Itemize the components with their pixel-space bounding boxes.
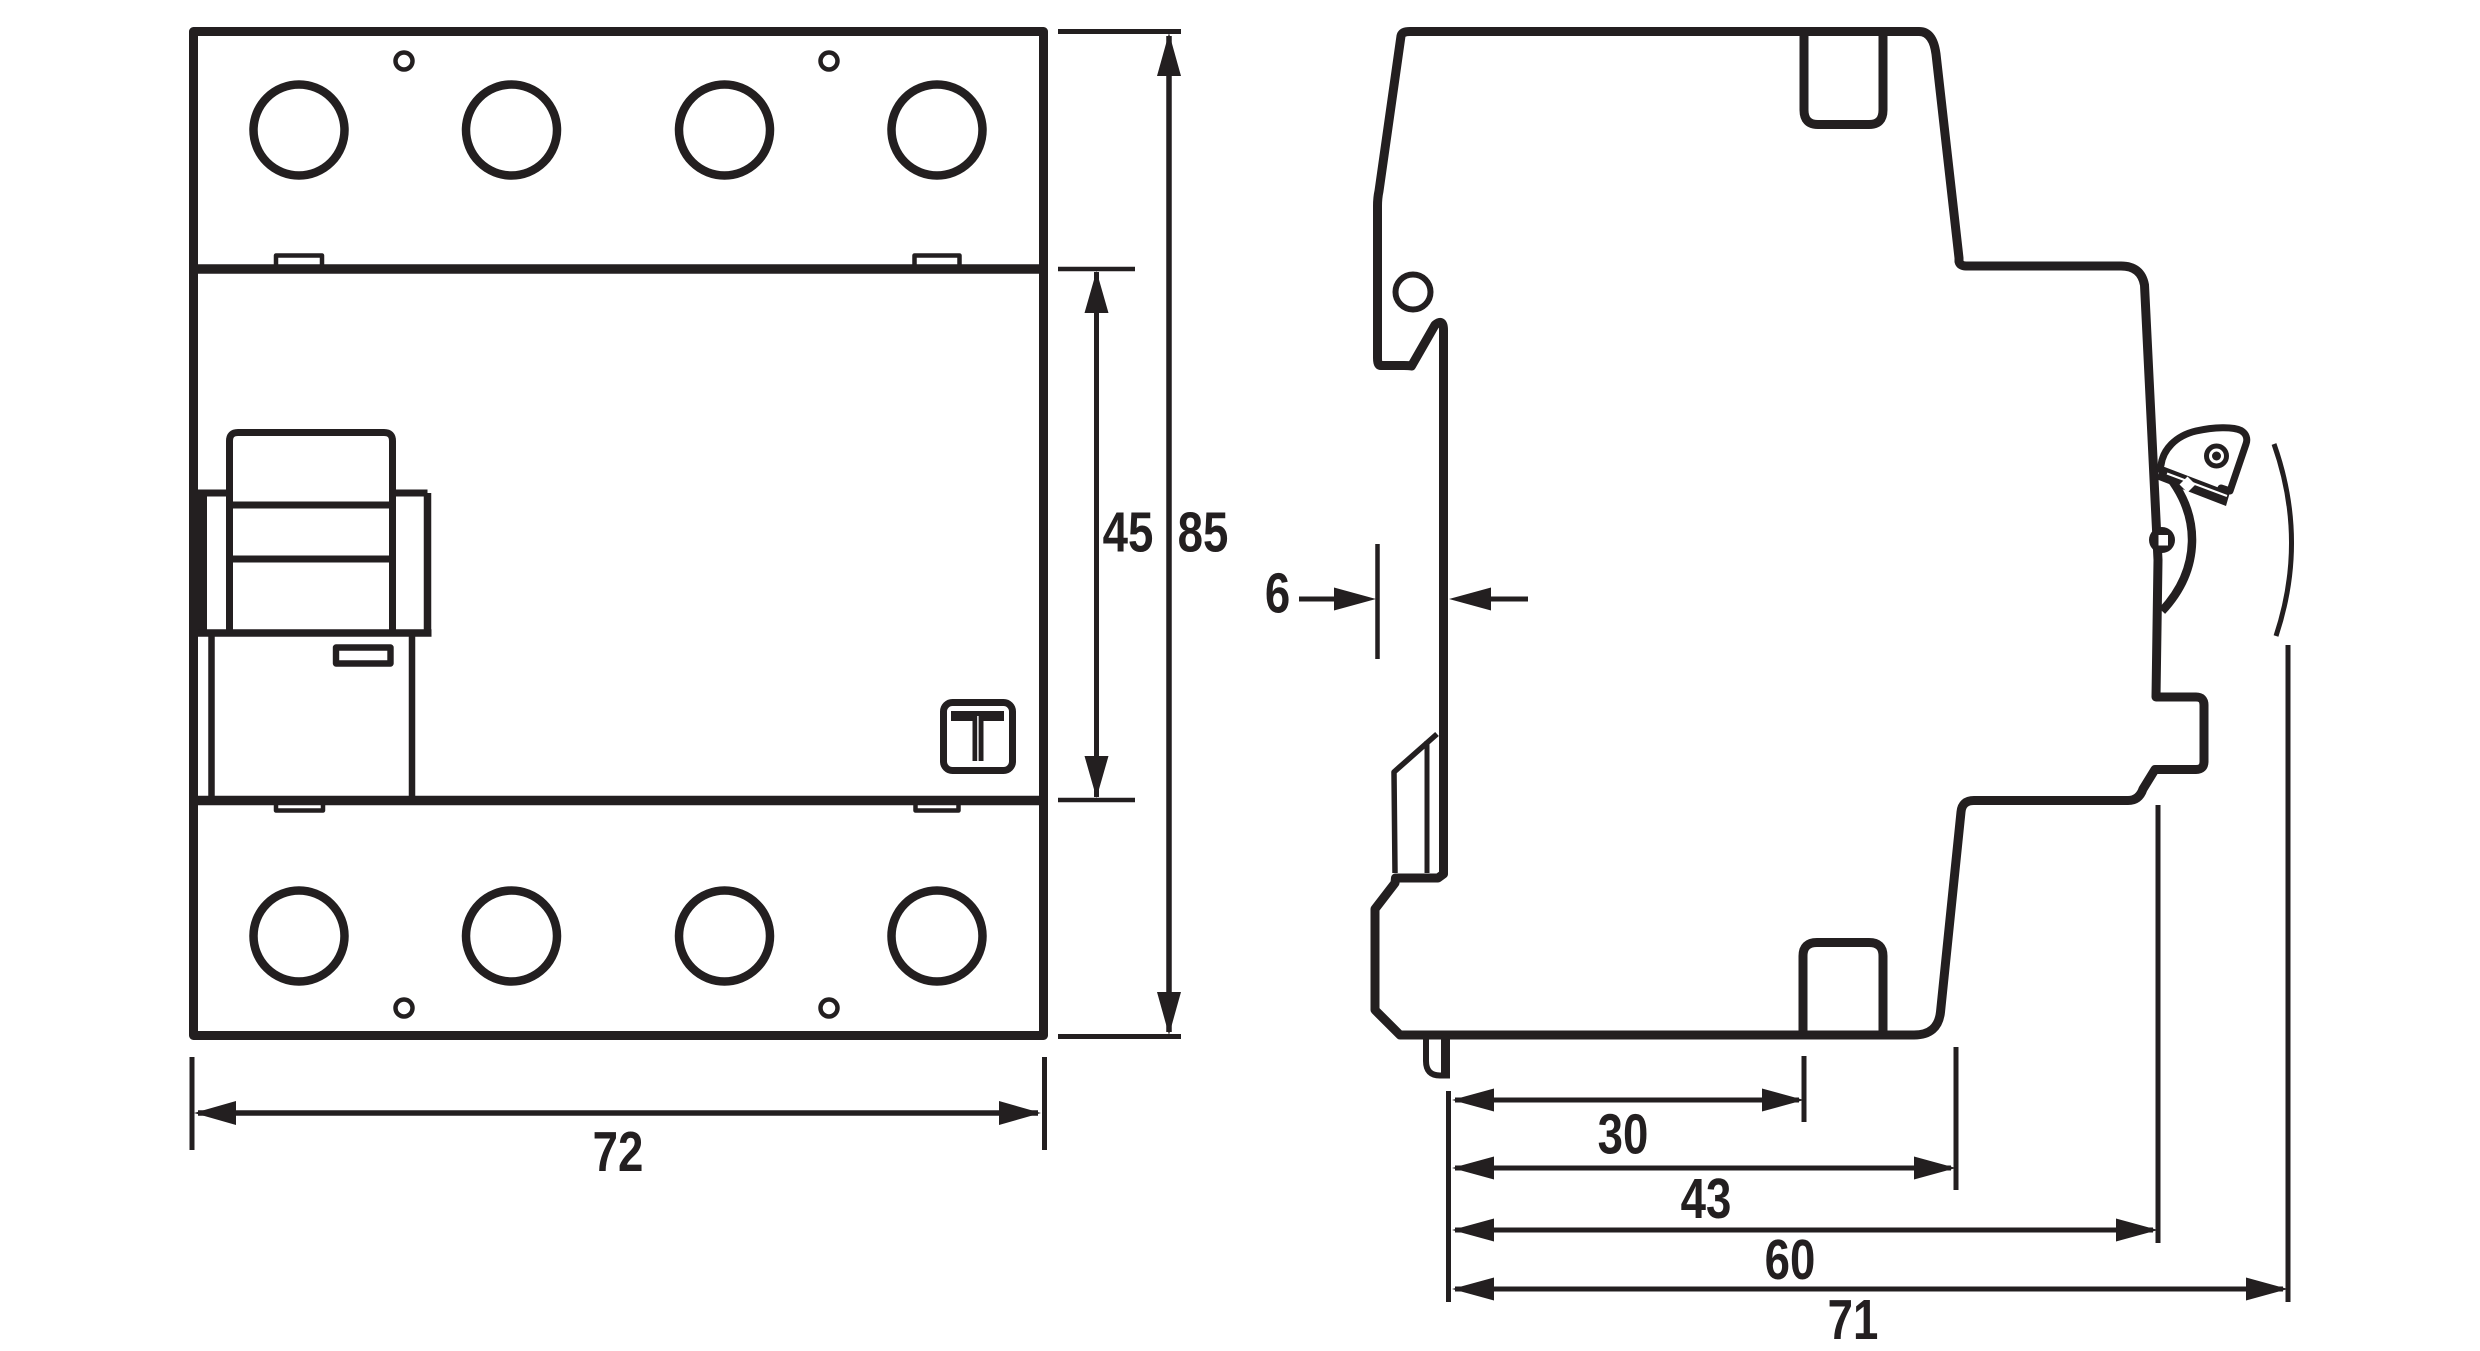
svg-text:30: 30 [1598,1102,1649,1166]
svg-text:45: 45 [1103,500,1154,564]
svg-text:60: 60 [1765,1227,1816,1291]
svg-text:72: 72 [593,1119,644,1183]
svg-text:6: 6 [1265,561,1290,625]
svg-text:85: 85 [1178,500,1229,564]
svg-text:43: 43 [1681,1166,1732,1230]
svg-text:71: 71 [1828,1287,1879,1351]
